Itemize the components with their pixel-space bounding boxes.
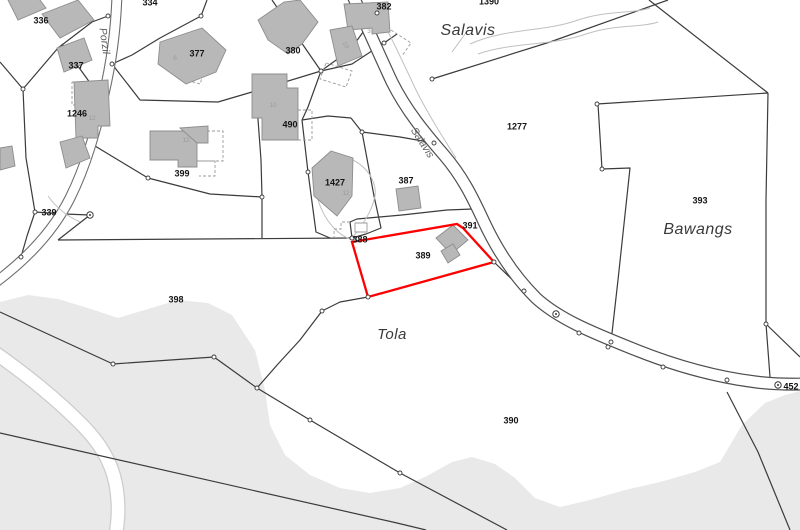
place-label-tola: Tola	[377, 326, 407, 343]
highlighted-parcel-389[interactable]	[352, 224, 494, 297]
parcel-label-490: 490	[282, 119, 297, 129]
parcel-label-336: 336	[33, 15, 48, 25]
vertex-node-14	[661, 365, 665, 369]
vertex-node-15	[725, 378, 729, 382]
vertex-node-5	[319, 69, 323, 73]
vertex-node-31	[606, 345, 610, 349]
parcel-label-1246: 1246	[67, 108, 87, 118]
parcel-label-452: 452	[783, 381, 798, 391]
parcel-label-389: 389	[415, 250, 430, 260]
vertex-node-27	[430, 77, 434, 81]
vertex-node-1	[33, 210, 37, 214]
vertex-node-21	[306, 170, 310, 174]
house-number-3-5: 3	[367, 28, 371, 35]
vertex-node-16	[764, 322, 768, 326]
cadastral-map-canvas[interactable]: 6121210103123343363373773803821246490399…	[0, 0, 800, 530]
aux-line-1	[478, 22, 658, 54]
parcel-boundary-17	[766, 324, 770, 377]
parcel-label-380: 380	[285, 45, 300, 55]
house-number-12-6: 12	[342, 190, 350, 197]
vertex-node-24	[398, 471, 402, 475]
vertex-node-22	[360, 130, 364, 134]
parcel-label-1277: 1277	[507, 121, 527, 131]
house-number-12-2: 12	[182, 137, 190, 144]
building-5	[0, 146, 15, 170]
vertex-node-7	[382, 41, 386, 45]
parcel-label-1390: 1390	[479, 0, 499, 6]
building-14	[396, 186, 421, 211]
parcel-boundary-27	[302, 116, 351, 120]
parcel-label-393: 393	[692, 195, 707, 205]
parcel-boundary-12	[766, 93, 768, 324]
survey-point-dot-2	[777, 384, 779, 386]
vertex-node-2	[19, 255, 23, 259]
vertex-node-23	[595, 102, 599, 106]
parcel-boundary-13	[597, 93, 768, 104]
parcel-label-388: 388	[352, 234, 367, 244]
parcel-boundary-4	[58, 238, 352, 240]
building-1	[42, 0, 94, 38]
parcel-label-382: 382	[376, 1, 391, 11]
parcel-label-390: 390	[503, 415, 518, 425]
vertex-node-20	[366, 295, 370, 299]
vertex-node-13	[212, 355, 216, 359]
vertex-node-0	[21, 87, 25, 91]
parcel-boundary-8	[257, 297, 368, 388]
shed-outline	[355, 223, 367, 232]
vertex-node-6	[375, 11, 379, 15]
house-number-6-0: 6	[173, 55, 177, 62]
parcel-boundary-14	[598, 104, 630, 342]
house-number-12-1: 12	[88, 115, 96, 122]
dashed-outline-4	[320, 63, 352, 87]
parcel-boundary-11	[649, 0, 768, 93]
vertex-node-25	[308, 418, 312, 422]
parcel-boundary-16	[766, 324, 800, 357]
parcel-boundary-0	[0, 62, 23, 89]
parcel-label-337: 337	[68, 60, 83, 70]
vertex-node-11	[320, 309, 324, 313]
parcel-label-391: 391	[462, 220, 477, 230]
vertex-node-28	[260, 195, 264, 199]
survey-point-dot-0	[89, 214, 91, 216]
map-viewport: 6121210103123343363373773803821246490399…	[0, 0, 800, 530]
vertex-node-17	[600, 167, 604, 171]
parcel-boundary-15	[432, 0, 668, 79]
parcel-label-377: 377	[189, 48, 204, 58]
vertex-node-10	[522, 289, 526, 293]
vertex-node-9	[492, 260, 496, 264]
dashed-outline-2	[199, 161, 215, 176]
vertex-node-3	[106, 14, 110, 18]
vertex-node-30	[577, 331, 581, 335]
vertex-node-18	[609, 340, 613, 344]
vertex-node-29	[110, 62, 114, 66]
house-number-10-3: 10	[269, 102, 277, 109]
parcel-label-399: 399	[174, 168, 189, 178]
vertex-node-32	[146, 176, 150, 180]
parcel-label-339: 339	[41, 207, 56, 217]
place-label-salavis: Salavis	[440, 22, 495, 39]
place-label-bawangs: Bawangs	[663, 221, 732, 238]
parcel-label-1427: 1427	[325, 177, 345, 187]
vertex-node-8	[432, 141, 436, 145]
street-label-porzil: Porzil	[96, 27, 112, 55]
parcel-label-387: 387	[398, 175, 413, 185]
parcel-label-334: 334	[142, 0, 157, 7]
parcel-label-398: 398	[168, 294, 183, 304]
vertex-node-4	[199, 14, 203, 18]
vertex-node-26	[255, 386, 259, 390]
vertex-node-12	[111, 362, 115, 366]
survey-point-dot-1	[555, 313, 557, 315]
